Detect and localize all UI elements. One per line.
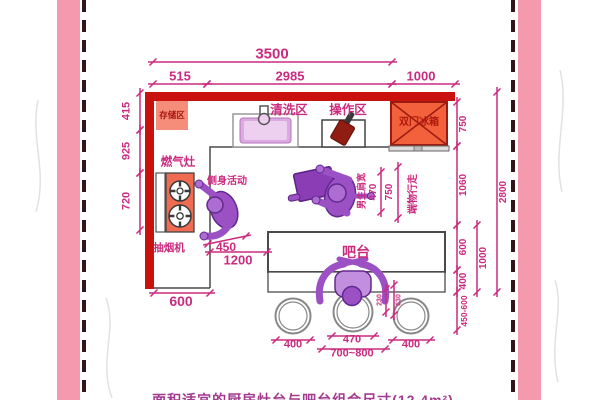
label-fridge: 双门冰箱 [399,118,439,128]
label-bar: 吧台 [342,245,370,259]
dim-shoulder-width: 470 [369,184,379,201]
gas-stove [166,173,194,232]
dim-aisle: 1200 [224,254,253,267]
wall-left [145,92,154,289]
label-hood: 抽烟机 [153,243,185,254]
kitchen-floorplan: 3500 515 2985 1000 415 925 720 750 1060 … [0,0,600,400]
label-shoulder: 男生肩宽 [358,173,367,209]
dim-stool-right: 400 [402,340,420,351]
hood-strip [156,173,165,232]
dim-bar-depth: 600 [459,239,469,256]
label-stove: 燃气灶 [161,157,196,169]
dim-seat-pitch: 700~800 [330,349,373,360]
label-side-activity: 侧身活动 [207,177,247,187]
stool-left [276,299,311,334]
dim-storage-depth: 415 [122,102,133,120]
dim-stool-zone: 450-600 [460,295,469,326]
label-operation-zone: 操作区 [329,104,367,117]
dim-counter-depth: 600 [169,294,192,308]
dim-seat-depth: 630 [396,294,403,306]
dim-stove-run: 720 [122,192,133,210]
person-cooking [195,180,243,240]
dim-bar-total: 1000 [479,247,489,269]
caption: 面积适宜的厨房灶台与吧台组合尺寸(12.4m²) [152,393,454,400]
dim-wall-gap: 925 [122,142,133,160]
label-storage-zone: 存储区 [159,111,185,120]
label-washing-zone: 清洗区 [270,104,308,117]
dim-overhang: 400 [459,273,469,290]
dim-fridge-zone: 1000 [407,70,436,83]
dim-walkway: 1060 [459,174,469,196]
dim-left-run: 515 [169,70,191,83]
dim-stool-left: 400 [284,340,302,351]
wall-top [145,92,455,101]
dim-total-width: 3500 [255,47,288,62]
label-carry: 端物行走 [409,174,419,214]
dim-carry-walk: 750 [385,184,395,201]
dim-knee-space: 230 [377,294,384,306]
dim-side-turn: 450 [216,241,236,253]
dim-fridge-depth: 750 [459,116,469,133]
dim-main-run: 2985 [276,70,305,83]
dim-room-depth: 2800 [499,181,509,203]
dim-stool-seat: 470 [343,335,361,346]
